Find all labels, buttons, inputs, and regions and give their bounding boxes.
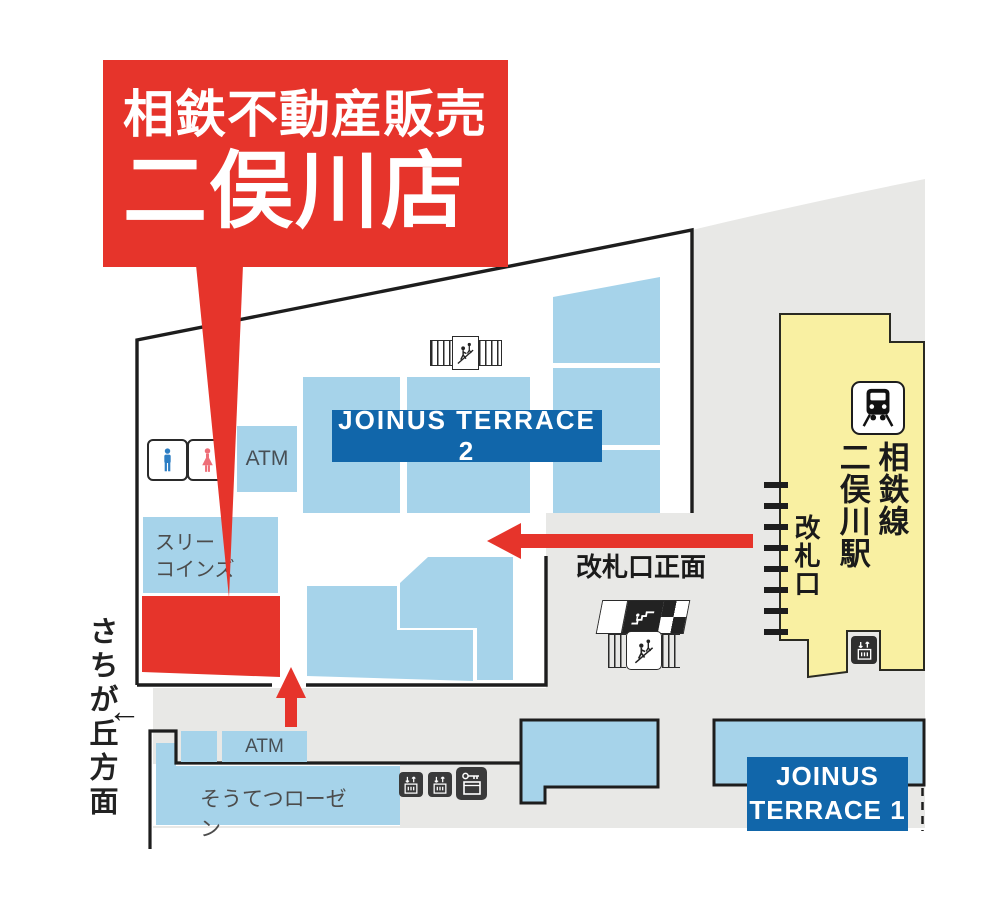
train-icon	[857, 386, 899, 430]
stairs-hatch	[662, 634, 680, 668]
left-arrow-icon: ←	[108, 692, 141, 730]
atm-upper-label: ATM	[246, 447, 289, 471]
elevator-icon	[399, 772, 423, 797]
womens-restroom	[187, 439, 228, 481]
store-location-highlight	[142, 596, 280, 677]
atm-booth-lower: ATM	[222, 731, 307, 762]
rosen-shop-label: そうてつローゼン	[200, 783, 360, 843]
atm-booth-upper: ATM	[237, 426, 297, 492]
escalator	[596, 600, 691, 634]
store-callout-banner: 相鉄不動産販売 二俣川店	[103, 60, 508, 267]
shop-block	[307, 586, 473, 681]
station-line-name: 相鉄線	[874, 441, 909, 537]
womens-restroom-icon	[199, 447, 216, 474]
three-coins-label-line2: コインズ	[155, 557, 278, 584]
entrance-up-arrow	[276, 667, 306, 727]
gate-front-label: 改札口正面	[576, 547, 726, 584]
company-name: 相鉄不動産販売	[123, 87, 508, 143]
stairs-icon	[626, 631, 661, 670]
stairs-lower	[608, 634, 680, 668]
shop-block	[400, 557, 513, 680]
joinus-terrace1-banner: JOINUS TERRACE 1	[747, 757, 908, 831]
mens-restroom-icon	[160, 447, 175, 474]
three-coins-shop: スリー コインズ	[143, 517, 278, 593]
middle-building	[521, 720, 658, 803]
escalator-checker-panel	[658, 601, 689, 633]
mens-restroom	[147, 439, 188, 481]
joinus-terrace2-banner: JOINUS TERRACE 2	[332, 410, 602, 462]
three-coins-label-line1: スリー	[155, 530, 278, 557]
joinus-terrace1-label-line2: TERRACE 1	[749, 794, 905, 828]
station-elevator-icon	[851, 636, 877, 664]
stairs-icon	[452, 336, 479, 370]
coin-locker-icon	[456, 767, 487, 800]
store-name: 二俣川店	[123, 143, 508, 240]
atm-lower-label: ATM	[245, 736, 284, 758]
stairs-hatch	[608, 634, 626, 668]
stairs	[430, 340, 502, 366]
station-symbol	[851, 381, 905, 435]
store-location-map: 相鉄不動産販売 二俣川店 ATM スリー コインズ JOINUS TE	[0, 0, 989, 917]
joinus-terrace2-label: JOINUS TERRACE 2	[332, 405, 602, 467]
shop-block	[553, 277, 660, 363]
elevator-icon	[428, 772, 452, 797]
building-border-right	[306, 556, 546, 685]
shop-block-small	[181, 731, 217, 762]
station-name-label: 相鉄線 二俣川駅	[832, 441, 910, 591]
station-name: 二俣川駅	[835, 441, 870, 569]
ticket-gate-label: 改札口	[788, 514, 825, 598]
ticket-gate-marks	[764, 482, 788, 635]
joinus-terrace1-label-line1: JOINUS	[749, 760, 905, 794]
